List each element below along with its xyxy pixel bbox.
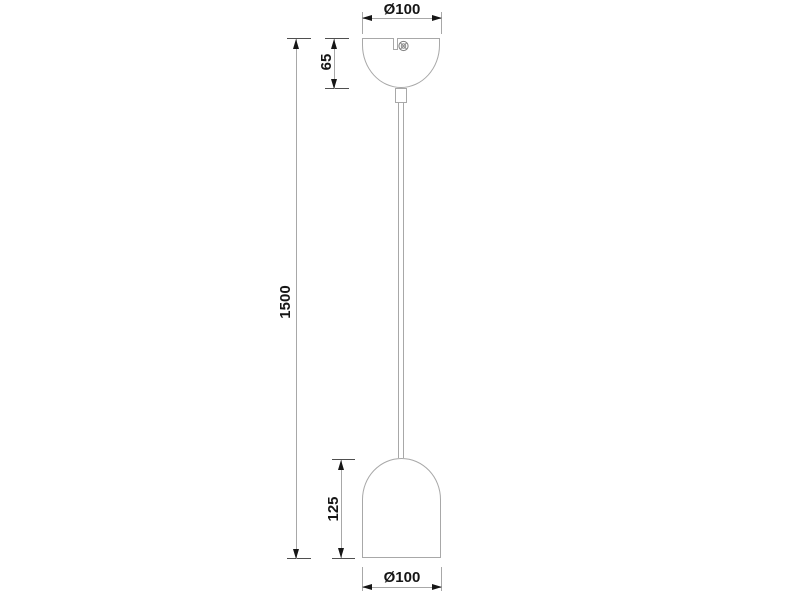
dim-overall-length-tick-bottom [287, 558, 311, 559]
arrow-right-icon [432, 15, 442, 21]
strain-relief-grip [395, 88, 407, 103]
dim-overall-length-label: 1500 [277, 282, 293, 322]
dim-canopy-diameter-line [362, 18, 442, 19]
cable-lock-screw-icon [397, 40, 410, 53]
arrow-up-icon [338, 460, 344, 470]
arrow-left-icon [362, 15, 372, 21]
dim-canopy-diameter-label: Ø100 [362, 2, 442, 17]
pendant-lamp-dimension-drawing: Ø100 65 1500 125 Ø100 [0, 0, 800, 600]
dim-shade-diameter-label: Ø100 [362, 570, 442, 585]
dim-canopy-height-tick-bottom [325, 88, 349, 89]
dim-shade-height-label: 125 [325, 489, 341, 529]
arrow-down-icon [338, 548, 344, 558]
arrow-up-icon [293, 39, 299, 49]
dim-shade-diameter-line [362, 587, 442, 588]
arrow-down-icon [293, 549, 299, 559]
dim-canopy-height-tick-top [325, 38, 349, 39]
dim-overall-length-line [296, 39, 297, 559]
dim-overall-length-tick-top [287, 38, 311, 39]
dim-canopy-height-label: 65 [318, 42, 334, 82]
suspension-cable [398, 103, 404, 458]
dim-shade-height-tick-bottom [332, 558, 355, 559]
lamp-shade [362, 458, 441, 558]
